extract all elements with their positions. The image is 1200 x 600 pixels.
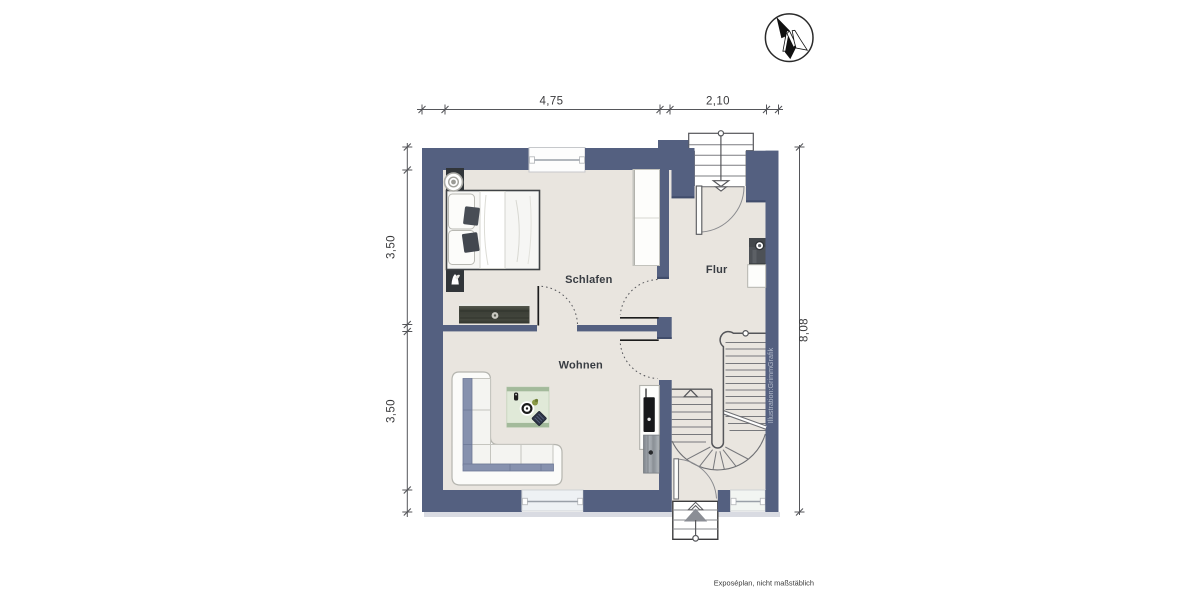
svg-text:2,10: 2,10 (706, 96, 730, 108)
svg-text:Flur: Flur (706, 264, 728, 276)
svg-text:Schlafen: Schlafen (565, 274, 613, 286)
svg-text:Illustration:GrimmGrafik: Illustration:GrimmGrafik (766, 347, 775, 423)
svg-text:Wohnen: Wohnen (559, 359, 603, 371)
svg-text:3,50: 3,50 (386, 235, 398, 259)
svg-text:Exposéplan, nicht maßstäblich: Exposéplan, nicht maßstäblich (714, 579, 814, 588)
svg-text:3,50: 3,50 (386, 399, 398, 423)
svg-text:4,75: 4,75 (540, 96, 564, 108)
svg-text:8,08: 8,08 (799, 318, 811, 342)
